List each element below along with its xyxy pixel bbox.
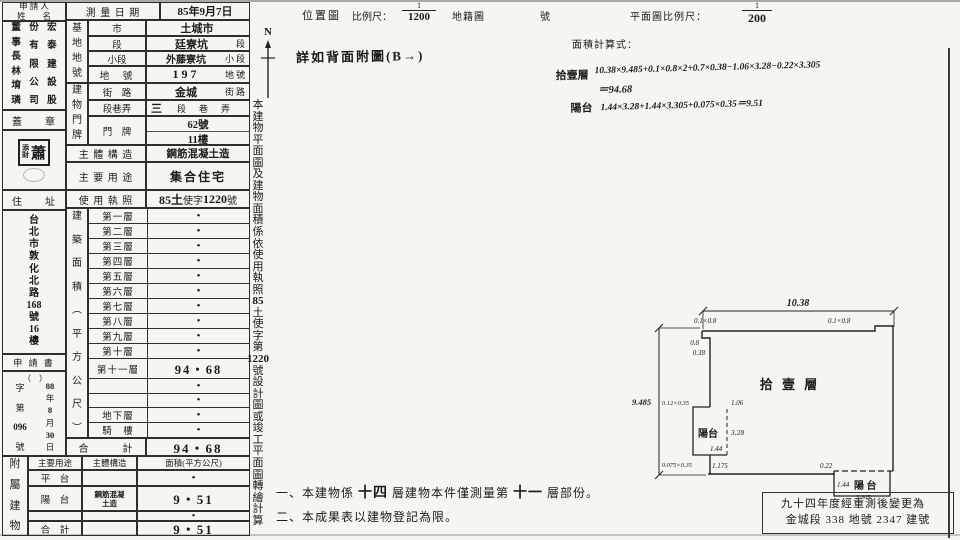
section-lane-text: 三 [147, 100, 162, 116]
scale-fraction: 1 1200 [402, 2, 436, 23]
plate-value: 62號 11樓 [146, 116, 250, 145]
floor-row-value: • [148, 209, 249, 223]
address-vertical-text: 台北市敦化北路168號16樓 [27, 216, 42, 348]
plate-label: 門 牌 [88, 116, 146, 145]
scale-numerator: 1 [417, 2, 421, 10]
survey-date-label: 測 量 日 期 [66, 2, 160, 20]
floor-row-label: 第三層 [89, 239, 148, 253]
resurvey-remark-box: 九十四年度經重測後變更為 金城段 338 地號 2347 建號 [762, 492, 954, 534]
vertical-statement-text: 本建物平面圖及建物面積係依使用執照85土使字第1220號設計圖或竣工平面圖轉繪計… [247, 100, 269, 495]
floor-row-value: • [148, 314, 249, 328]
note1-mid: 層建物本件僅測量第 [392, 486, 509, 500]
door-group-cell: 建物門牌 [66, 83, 88, 145]
floor-row-label [89, 394, 148, 408]
plan-dim-08: 0.8 [690, 339, 699, 347]
floor-row-label: 第四層 [89, 254, 148, 268]
floor-area-row: 騎 樓• [89, 423, 249, 438]
floor-row-label [89, 379, 148, 393]
seal-label: 蓋 章 [2, 110, 66, 130]
plan-dim-038: 0.38 [693, 349, 706, 357]
structure-label: 主 體 構 造 [66, 145, 146, 162]
applicant-name-header: 申 請 人 姓 名 [2, 2, 66, 21]
floor-row-label: 第五層 [89, 269, 148, 283]
applicant-header-line2: 姓 名 [17, 12, 51, 21]
note-line-2: 二、本成果表以建物登記為限。 [276, 508, 458, 525]
annex-header-use: 主要用途 [28, 456, 82, 470]
floor-row-value: • [148, 344, 249, 358]
annex-row-blank-struct [82, 511, 137, 521]
annex-header-area: 面積(平方公尺) [137, 456, 250, 470]
annex-row-total-area: 9・51 [137, 521, 250, 536]
license-part1: 85土 [159, 191, 183, 208]
section-lane-suffix: 段 巷 弄 [162, 102, 249, 115]
seal-cell: 添財 蕭 [2, 130, 66, 190]
floor-area-row: 第三層• [89, 239, 249, 254]
floor-row-value: • [148, 408, 249, 422]
back-attachment-note: 詳如背面附圖(B→) [296, 45, 425, 66]
remark-line-1: 九十四年度經重測後變更為 [767, 495, 949, 511]
floor-area-row: 第二層• [89, 224, 249, 239]
floor-row-label: 第九層 [89, 329, 148, 343]
floor-plan-drawing: 10.38 9.485 0.1×0.8 0.1×0.8 0.8 0.38 0.1… [630, 285, 960, 500]
street-text: 金城 [147, 84, 225, 100]
floor-row-label: 第八層 [89, 314, 148, 328]
address-label: 住 址 [2, 190, 66, 210]
annex-side-label: 附屬建物 [10, 459, 21, 533]
floor-area-row: 第十一層94・68 [89, 359, 249, 379]
application-date-column: 88年8月30日 [37, 382, 63, 454]
plate-number: 62號 [147, 117, 249, 132]
floor-row-value: • [148, 284, 249, 298]
section-lane-value: 三 段 巷 弄 [146, 100, 250, 116]
floor-area-row: 第一層• [89, 209, 249, 224]
annex-row-total-struct [82, 521, 137, 536]
floor-row-value: • [148, 394, 249, 408]
plate-floor: 11樓 [147, 132, 249, 146]
application-no-column: 字第096號 [7, 384, 33, 454]
floor-row-value: • [148, 299, 249, 313]
site-city-text: 土城市 [147, 20, 247, 36]
floor-area-row: 第六層• [89, 284, 249, 299]
license-part2: 使字 [183, 192, 203, 207]
floor-area-row: 第七層• [89, 299, 249, 314]
applicant-name-col-left: 董事長林堉璘 [11, 24, 21, 107]
application-doc-label: 申 請 書 [2, 354, 66, 371]
license-label: 使 用 執 照 [66, 190, 146, 208]
note1-floors-total: 十四 [358, 486, 388, 501]
annex-row-platform-use: 平 台 [28, 470, 82, 486]
site-section-suffix: 段 [236, 37, 249, 50]
floor-row-value: • [148, 379, 249, 393]
plan-dim-012x035: 0.12×0.35 [662, 400, 690, 407]
floor-row-value: • [148, 423, 249, 437]
floor-row-label: 第一層 [89, 209, 148, 223]
street-label: 街 路 [88, 83, 146, 100]
site-subsection-suffix: 小段 [225, 52, 249, 65]
calc-line2-label: 陽台 [570, 99, 592, 116]
floor-row-label: 第十一層 [89, 359, 148, 378]
street-value: 金城 街路 [146, 83, 250, 100]
annex-row-total-use: 合 計 [28, 521, 82, 536]
annex-row-platform-area: • [137, 470, 250, 486]
survey-date-value: 85年9月7日 [160, 2, 250, 20]
application-number-cell: （ ） 字第096號 88年8月30日 [2, 371, 66, 456]
note1-floor-measured: 十一 [513, 486, 543, 501]
floor-area-rows: 第一層•第二層•第三層•第四層•第五層•第六層•第七層•第八層•第九層•第十層•… [89, 209, 249, 438]
plan-dim-022: 0.22 [820, 462, 833, 470]
plan-dim-left: 9.485 [632, 397, 652, 407]
floor-row-label: 第六層 [89, 284, 148, 298]
plan-scale-fraction: 1 200 [742, 2, 772, 24]
area-calc-block: 拾壹層 10.38×9.485+0.1×0.8×2+0.7×0.38−1.06×… [555, 57, 960, 117]
compass: N [256, 26, 280, 106]
annex-row-balcony-area: 9・51 [137, 486, 250, 511]
site-group-label: 基地地號 [72, 24, 82, 80]
floor-row-label: 第二層 [89, 224, 148, 238]
annex-row-blank-use [28, 511, 82, 521]
note1-pre: 一、本建物係 [276, 486, 354, 500]
plan-balcony-left-label: 陽台 [698, 427, 718, 440]
remark-line-2: 金城段 338 地號 2347 建號 [767, 511, 949, 527]
floor-row-value: • [148, 224, 249, 238]
floor-row-label: 第七層 [89, 299, 148, 313]
floor-area-group-label: 建築面積︵平方公尺︶ [72, 212, 82, 434]
site-subsection-value: 外藤寮坑 小段 [146, 51, 250, 66]
application-date-vertical: 88年8月30日 [37, 382, 63, 452]
floor-area-row: 第八層• [89, 314, 249, 329]
plan-dim-1175: 1.175 [712, 462, 728, 470]
site-lot-value: 197 地號 [146, 66, 250, 83]
scale-label: 比例尺： [352, 8, 392, 23]
floor-row-value: • [148, 239, 249, 253]
application-no-vertical: 字第096號 [7, 384, 33, 452]
site-group-cell: 基地地號 [66, 20, 88, 83]
floor-area-row: 第五層• [89, 269, 249, 284]
seal-stamp: 添財 蕭 [18, 139, 50, 166]
floor-row-label: 地下層 [89, 408, 148, 422]
annex-row-balcony-use: 陽 台 [28, 486, 82, 511]
note1-post: 層部份。 [547, 486, 599, 500]
plan-main-room-label: 拾 壹 層 [760, 377, 821, 392]
floor-area-table: 第一層•第二層•第三層•第四層•第五層•第六層•第七層•第八層•第九層•第十層•… [88, 208, 250, 438]
floor-area-row: 地下層• [89, 408, 249, 423]
seal-stamp-big-char: 蕭 [31, 142, 46, 163]
usage-label: 主 要 用 途 [66, 162, 146, 190]
site-city-label: 市 [88, 20, 146, 36]
plan-scale-numerator: 1 [755, 2, 759, 10]
plan-dim-106: 1.06 [731, 399, 744, 407]
sheet-no-label: 號 [540, 8, 550, 23]
plan-scale-label: 平面圖比例尺： [630, 8, 707, 23]
compass-n-label: N [256, 26, 280, 38]
usage-value: 集合住宅 [146, 162, 250, 190]
floor-total-value: 94・68 [146, 438, 250, 456]
plan-scale-denominator: 200 [742, 10, 772, 24]
floor-row-value: • [148, 254, 249, 268]
scale-denominator: 1200 [402, 10, 436, 23]
annex-balcony-struct-text: 鋼筋混凝土造 [94, 490, 126, 508]
site-city-value: 土城市 [146, 20, 250, 36]
location-map-label: 位置圖 [302, 7, 341, 23]
floor-area-row: 第九層• [89, 329, 249, 344]
license-part3: 1220 [203, 192, 227, 207]
applicant-name-col-mid: 份有限公司 [29, 24, 39, 107]
floor-area-row: 第四層• [89, 254, 249, 269]
annex-row-balcony-struct: 鋼筋混凝土造 [82, 486, 137, 511]
site-section-value: 廷寮坑 段 [146, 36, 250, 51]
floor-row-label: 騎 樓 [89, 423, 148, 437]
floor-row-value: 94・68 [148, 359, 249, 378]
note-line-1: 一、本建物係 十四 層建物本件僅測量第 十一 層部份。 [276, 482, 599, 502]
license-value: 85土 使字 1220 號 [146, 190, 250, 208]
annex-row-platform-struct [82, 470, 137, 486]
floor-total-label: 合 計 [66, 438, 146, 456]
floor-area-row: • [89, 379, 249, 394]
faint-round-stamp [23, 168, 45, 182]
plan-dim-328: 3.28 [730, 428, 744, 437]
structure-value: 鋼筋混凝土造 [146, 145, 250, 162]
section-lane-label: 段巷弄 [88, 100, 146, 116]
floor-row-label: 第十層 [89, 344, 148, 358]
site-lot-suffix: 地號 [225, 68, 249, 81]
area-calc-title: 面積計算式： [572, 36, 638, 51]
vertical-statement-strip: 本建物平面圖及建物面積係依使用執照85土使字第1220號設計圖或竣工平面圖轉繪計… [247, 100, 269, 495]
calc-line1-label: 拾壹層 [555, 66, 588, 83]
applicant-name-col-right: 宏泰建設股 [47, 24, 57, 107]
floor-area-group-cell: 建築面積︵平方公尺︶ [66, 208, 88, 438]
site-subsection-label: 小段 [88, 51, 146, 66]
annex-header-structure: 主體構造 [82, 456, 137, 470]
plan-dim-0075x035: 0.075×0.35 [662, 462, 693, 469]
floor-area-row: • [89, 394, 249, 409]
scanned-building-survey-form: 申 請 人 姓 名 董事長林堉璘 份有限公司 宏泰建設股 蓋 章 添財 蕭 住 … [0, 0, 960, 540]
floor-area-row: 第十層• [89, 344, 249, 359]
applicant-name-value: 董事長林堉璘 份有限公司 宏泰建設股 [2, 21, 66, 110]
plan-dim-tr-notch: 0.1×0.8 [828, 317, 851, 325]
license-part4: 號 [227, 192, 237, 207]
site-lot-text: 197 [147, 67, 225, 82]
plan-dim-144-right: 1.44 [837, 481, 850, 489]
compass-arrow-icon [256, 38, 280, 102]
annex-side-cell: 附屬建物 [2, 456, 28, 536]
floor-row-value: • [148, 329, 249, 343]
door-group-label: 建物門牌 [72, 86, 82, 142]
site-section-label: 段 [88, 36, 146, 51]
cadastral-map-label: 地籍圖 [452, 8, 485, 23]
street-suffix: 街路 [225, 85, 249, 98]
calc-line1-formula: 10.38×9.485+0.1×0.8×2+0.7×0.38−1.06×3.28… [594, 60, 820, 76]
address-value: 台北市敦化北路168號16樓 [2, 210, 66, 354]
seal-stamp-small-chars: 添財 [22, 145, 29, 160]
site-section-text: 廷寮坑 [147, 36, 236, 52]
plan-dim-top: 10.38 [787, 298, 810, 309]
site-subsection-text: 外藤寮坑 [147, 51, 225, 66]
plan-balcony-right-label: 陽 台 [854, 479, 877, 492]
calc-line2-formula: 1.44×3.28+1.44×3.305+0.075×0.35＝9.51 [600, 95, 763, 113]
plan-dim-tl-notch: 0.1×0.8 [694, 317, 717, 325]
site-lot-label: 地 號 [88, 66, 146, 83]
plan-dim-144-left: 1.44 [710, 445, 723, 453]
floor-row-value: • [148, 269, 249, 283]
